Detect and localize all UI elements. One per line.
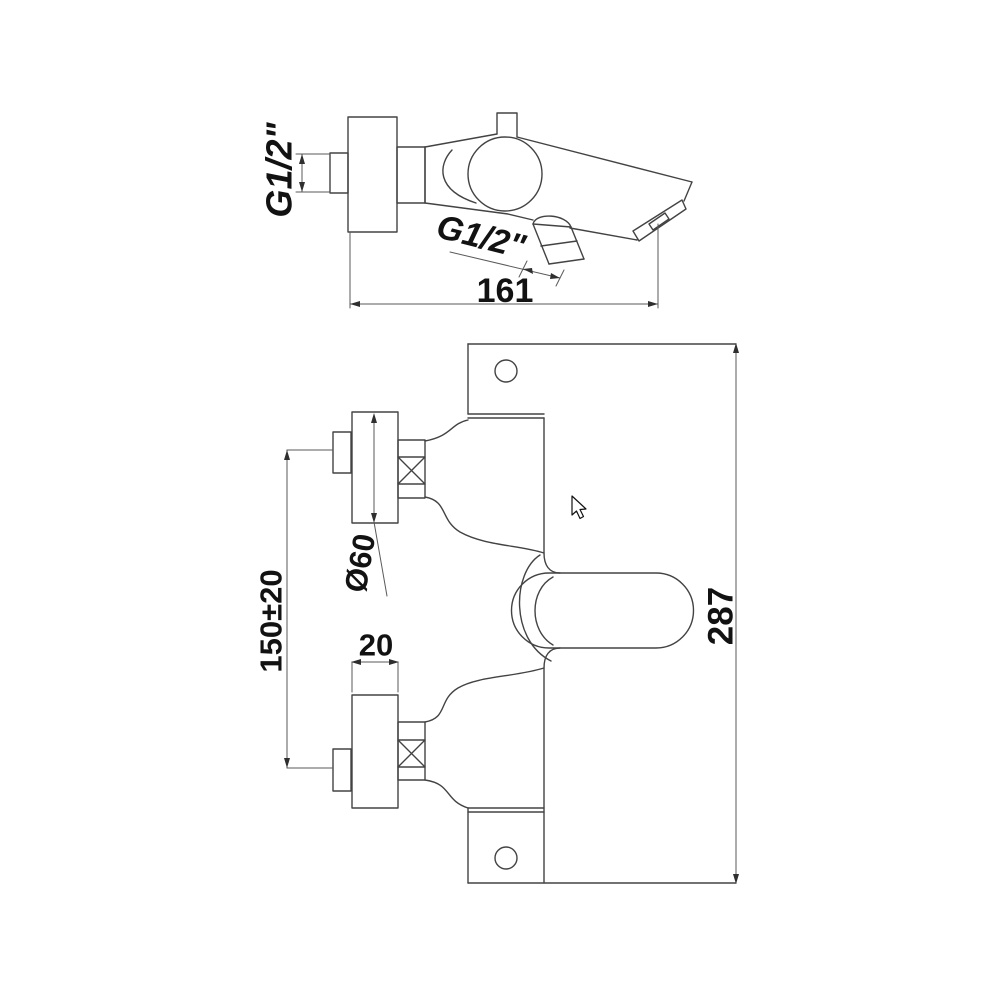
dimension-escutcheon-depth — [351, 659, 399, 692]
mouse-cursor — [572, 496, 586, 519]
top-inlet-valve — [333, 412, 544, 553]
side-view: G1/2" G1/2" 161 — [259, 113, 693, 310]
top-escutcheon — [352, 412, 398, 523]
label-overall-depth: 161 — [477, 272, 534, 310]
bottom-inlet-nut — [333, 749, 351, 791]
ball-joint — [468, 137, 542, 211]
label-inlet-centres: 150±20 — [254, 569, 289, 672]
top-wall-plate — [468, 344, 544, 418]
aerator — [633, 200, 686, 241]
bottom-inlet-valve — [333, 668, 544, 808]
label-escutcheon-depth: 20 — [359, 628, 393, 663]
bottom-valve-cartridge — [398, 722, 425, 780]
drawing-canvas: G1/2" G1/2" 161 — [0, 0, 1000, 1000]
bottom-escutcheon — [352, 695, 398, 808]
label-overall-height: 287 — [702, 587, 741, 645]
label-escutcheon-diameter: Ø60 — [338, 531, 383, 595]
bottom-screw-hole — [495, 847, 517, 869]
front-view: Ø60 150±20 20 287 — [254, 343, 741, 884]
wall-escutcheon — [348, 117, 397, 232]
label-inlet-thread: G1/2" — [259, 122, 300, 218]
technical-drawing: G1/2" G1/2" 161 — [0, 0, 1000, 1000]
shower-outlet — [533, 216, 584, 264]
top-inlet-nut — [333, 432, 351, 473]
handle-lever — [512, 555, 694, 661]
top-valve-cartridge — [398, 440, 425, 498]
bottom-wall-plate — [468, 808, 544, 883]
body-connector — [397, 147, 425, 203]
top-screw-hole — [495, 360, 517, 382]
dimension-inlet-thread — [296, 154, 330, 192]
inlet-fitting — [330, 153, 348, 193]
dimension-inlet-centres — [284, 450, 333, 768]
mixer-body — [468, 344, 736, 883]
label-outlet-thread: G1/2" — [433, 208, 530, 267]
